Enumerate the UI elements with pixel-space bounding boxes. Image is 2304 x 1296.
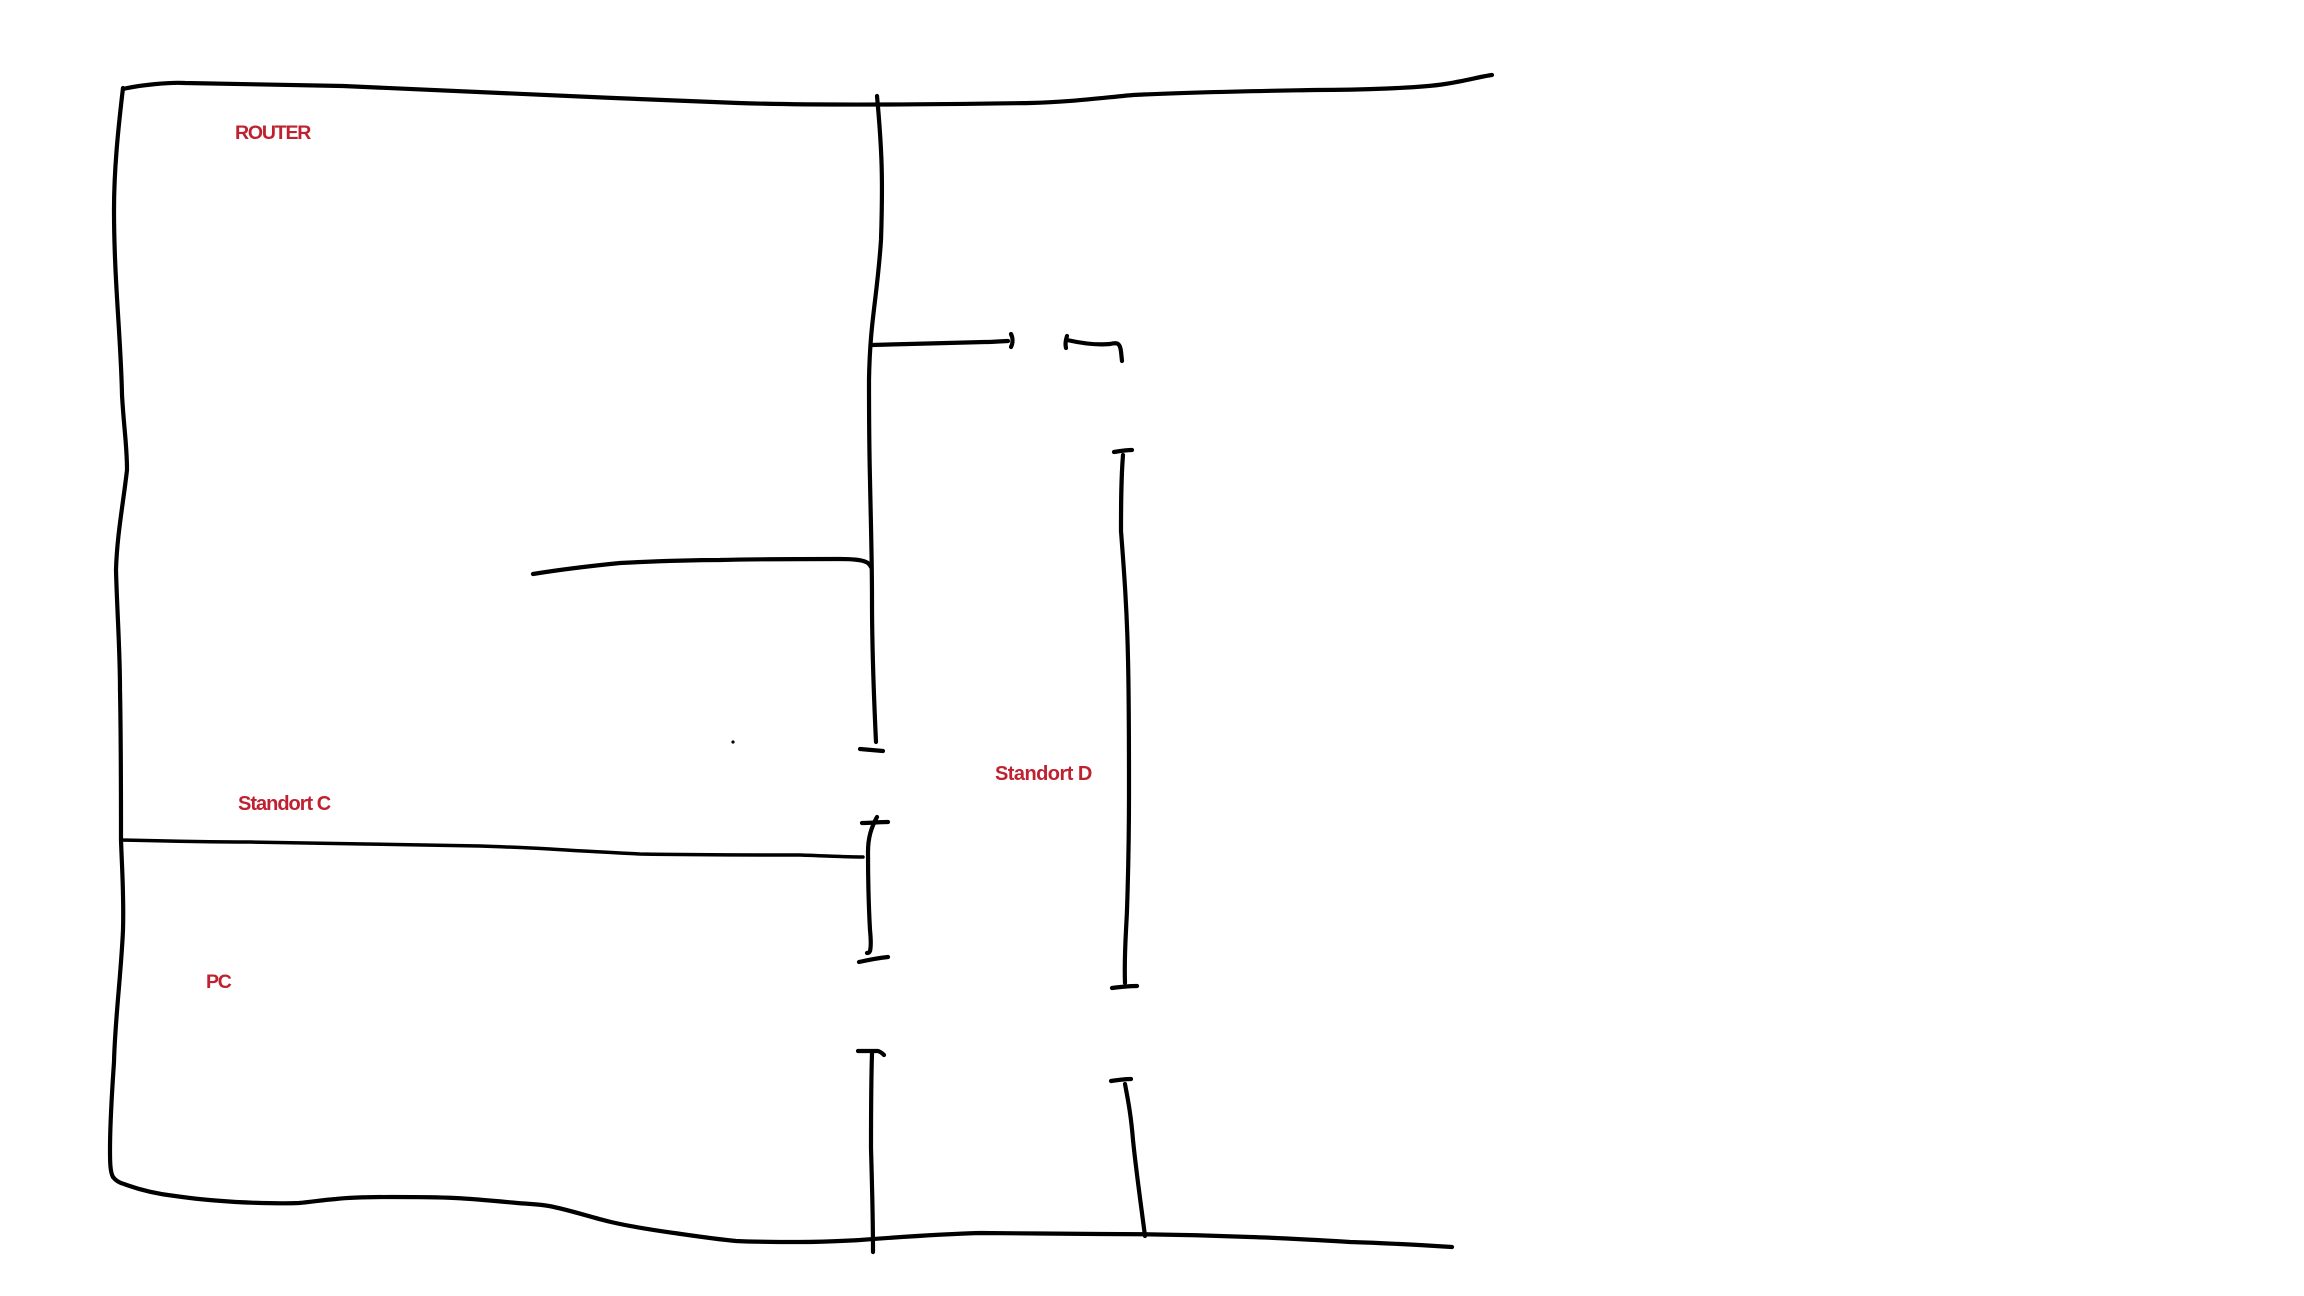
svg-text:Standort D: Standort D — [995, 763, 1092, 785]
svg-text:Standort C: Standort C — [238, 793, 331, 815]
svg-text:PC: PC — [206, 971, 232, 993]
svg-text:ROUTER: ROUTER — [235, 122, 311, 144]
